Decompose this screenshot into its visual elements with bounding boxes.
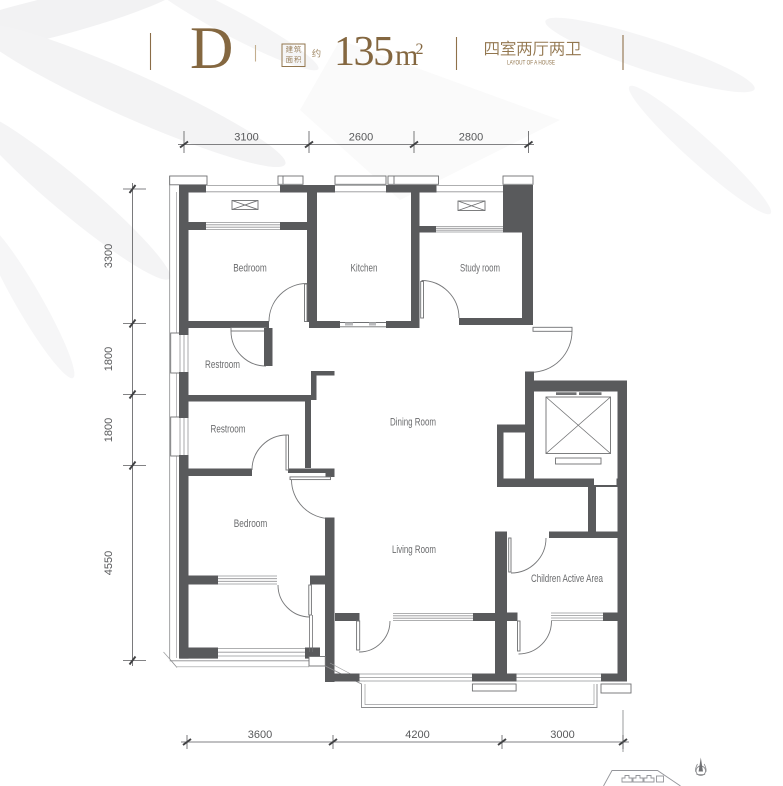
svg-text:Restroom: Restroom	[205, 359, 240, 371]
svg-text:Bedroom: Bedroom	[233, 263, 267, 275]
svg-text:Children Active Area: Children Active Area	[531, 573, 603, 585]
svg-text:3000: 3000	[550, 729, 574, 741]
svg-text:Living Room: Living Room	[392, 544, 436, 556]
svg-text:Dining Room: Dining Room	[390, 417, 436, 429]
svg-text:3300: 3300	[103, 244, 115, 268]
svg-text:1800: 1800	[103, 418, 115, 442]
svg-text:4550: 4550	[103, 551, 115, 575]
svg-text:2: 2	[416, 41, 424, 58]
svg-text:4200: 4200	[405, 729, 429, 741]
svg-text:135: 135	[334, 29, 394, 75]
svg-text:3100: 3100	[234, 132, 258, 144]
svg-text:Study room: Study room	[460, 263, 500, 275]
svg-text:Restroom: Restroom	[211, 424, 246, 436]
svg-text:2800: 2800	[459, 132, 483, 144]
svg-text:D: D	[190, 15, 233, 81]
svg-text:LAYOUT OF A HOUSE: LAYOUT OF A HOUSE	[507, 61, 555, 67]
svg-text:Kitchen: Kitchen	[351, 263, 378, 275]
svg-text:1800: 1800	[103, 347, 115, 371]
svg-text:2600: 2600	[349, 132, 373, 144]
svg-text:Bedroom: Bedroom	[234, 518, 268, 530]
svg-text:3600: 3600	[248, 729, 272, 741]
